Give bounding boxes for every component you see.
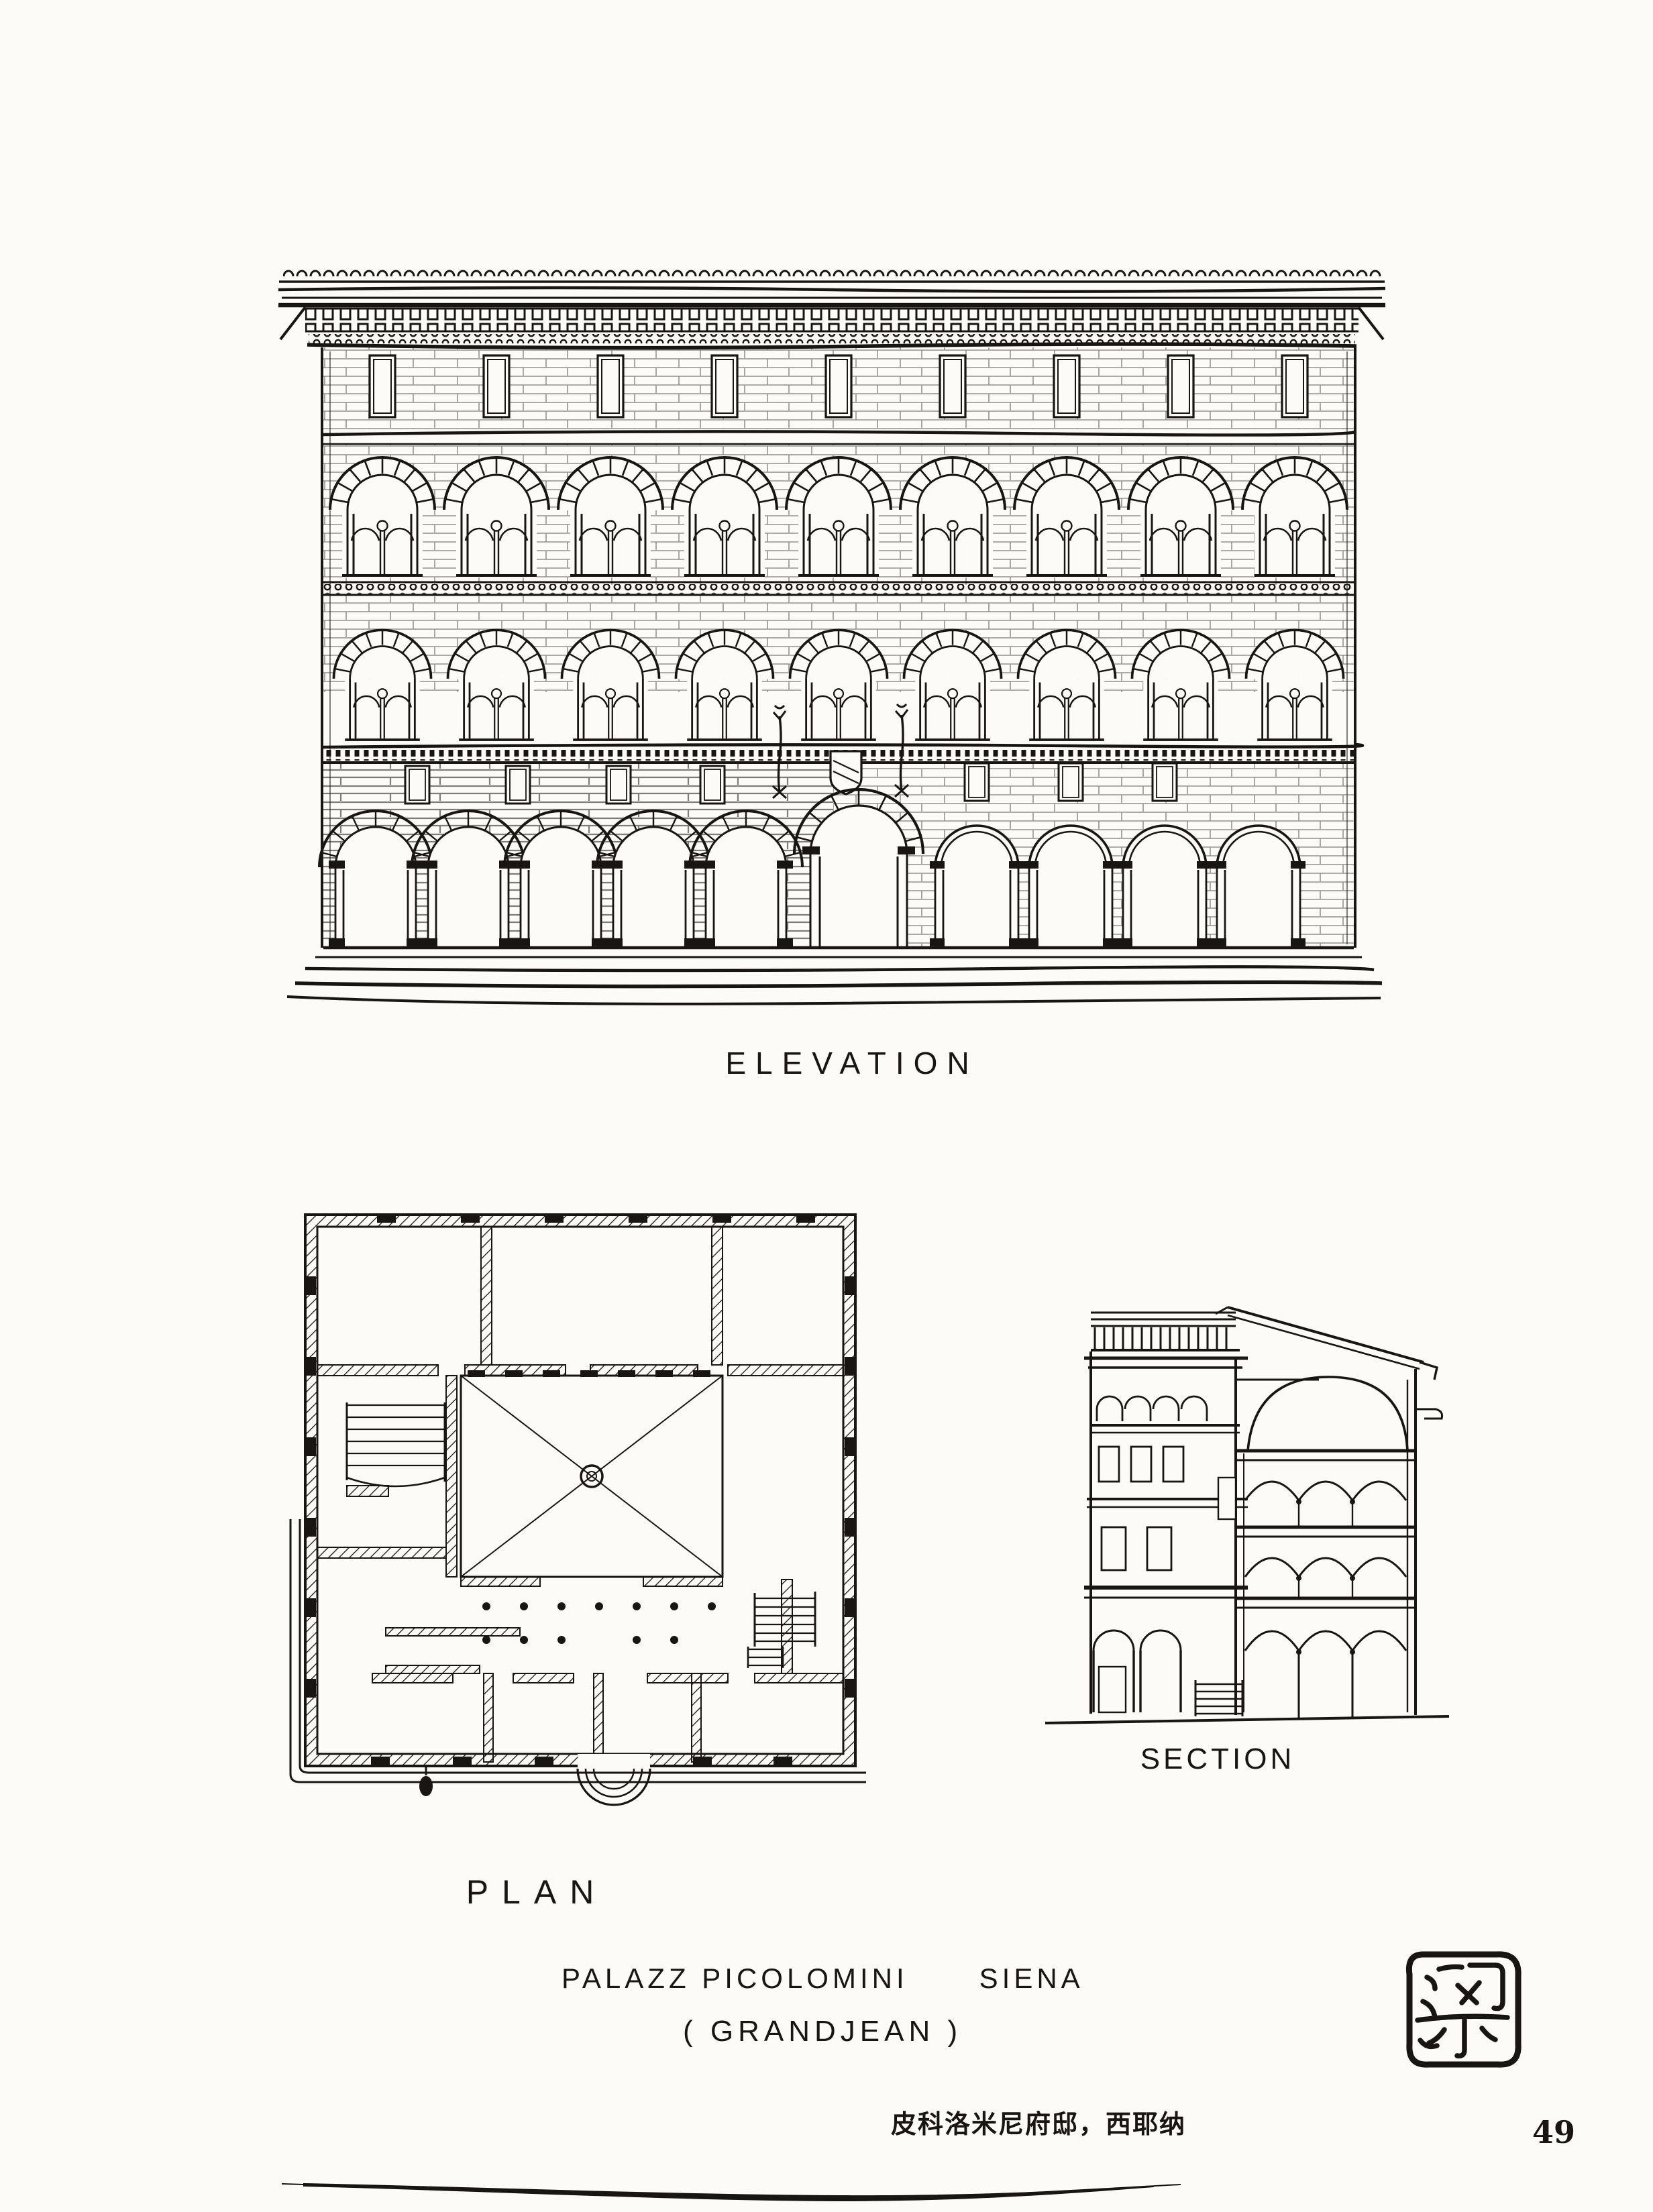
ground-line	[287, 997, 1381, 1004]
elevation-svg	[268, 254, 1395, 1011]
coat-of-arms	[831, 751, 861, 794]
seal-character-strokes	[1418, 1965, 1507, 2056]
plan-svg	[285, 1204, 875, 1808]
roof-balustrade	[1091, 1313, 1240, 1350]
section-roof	[1216, 1307, 1437, 1380]
section-door	[1218, 1478, 1236, 1519]
interior-walls	[317, 1227, 843, 1762]
middle-bifora-windows	[333, 628, 1343, 741]
section-windows-lower	[1102, 1527, 1171, 1570]
page-number: 49	[1527, 2114, 1581, 2150]
caption-chinese: 皮科洛米尼府邸，西耶纳	[891, 2103, 1186, 2140]
book-page: ELEVATION PLAN SECTION PALAZZ PICOLOMINI…	[0, 0, 1653, 2212]
section-loggia	[1097, 1396, 1207, 1421]
cloister-columns	[482, 1602, 716, 1644]
section-ground-arches	[1094, 1630, 1181, 1712]
caption-credit: ( GRANDJEAN )	[683, 2015, 962, 2048]
artist-seal: 梁	[1399, 1945, 1528, 2074]
great-vault	[1248, 1377, 1407, 1451]
elevation-label: ELEVATION	[684, 1045, 1020, 1081]
section-label: SECTION	[1104, 1743, 1332, 1776]
seal-svg	[1399, 1945, 1528, 2074]
section-windows-upper	[1099, 1447, 1183, 1482]
stair-west	[347, 1402, 445, 1496]
upper-bifora-windows	[330, 456, 1347, 577]
caption-title: PALAZZ PICOLOMINI SIENA	[562, 1962, 1084, 1995]
bead-string-course	[322, 584, 1355, 594]
cornice-dentils	[305, 309, 1358, 331]
gargoyle-spout	[1416, 1409, 1442, 1419]
section-svg	[1026, 1278, 1462, 1740]
elevation-drawing	[268, 254, 1395, 1011]
section-ground-line	[1045, 1716, 1449, 1723]
plan-drawing	[285, 1204, 875, 1808]
courtyard	[461, 1370, 723, 1644]
page-bottom-smudge	[0, 2166, 1653, 2212]
cornice-crenellation	[283, 270, 1382, 281]
plan-ink-blot	[419, 1776, 433, 1796]
base-step	[305, 966, 1374, 971]
section-drawing	[1026, 1278, 1462, 1740]
entrance-arc	[578, 1754, 650, 1805]
plan-label: PLAN	[429, 1873, 644, 1912]
